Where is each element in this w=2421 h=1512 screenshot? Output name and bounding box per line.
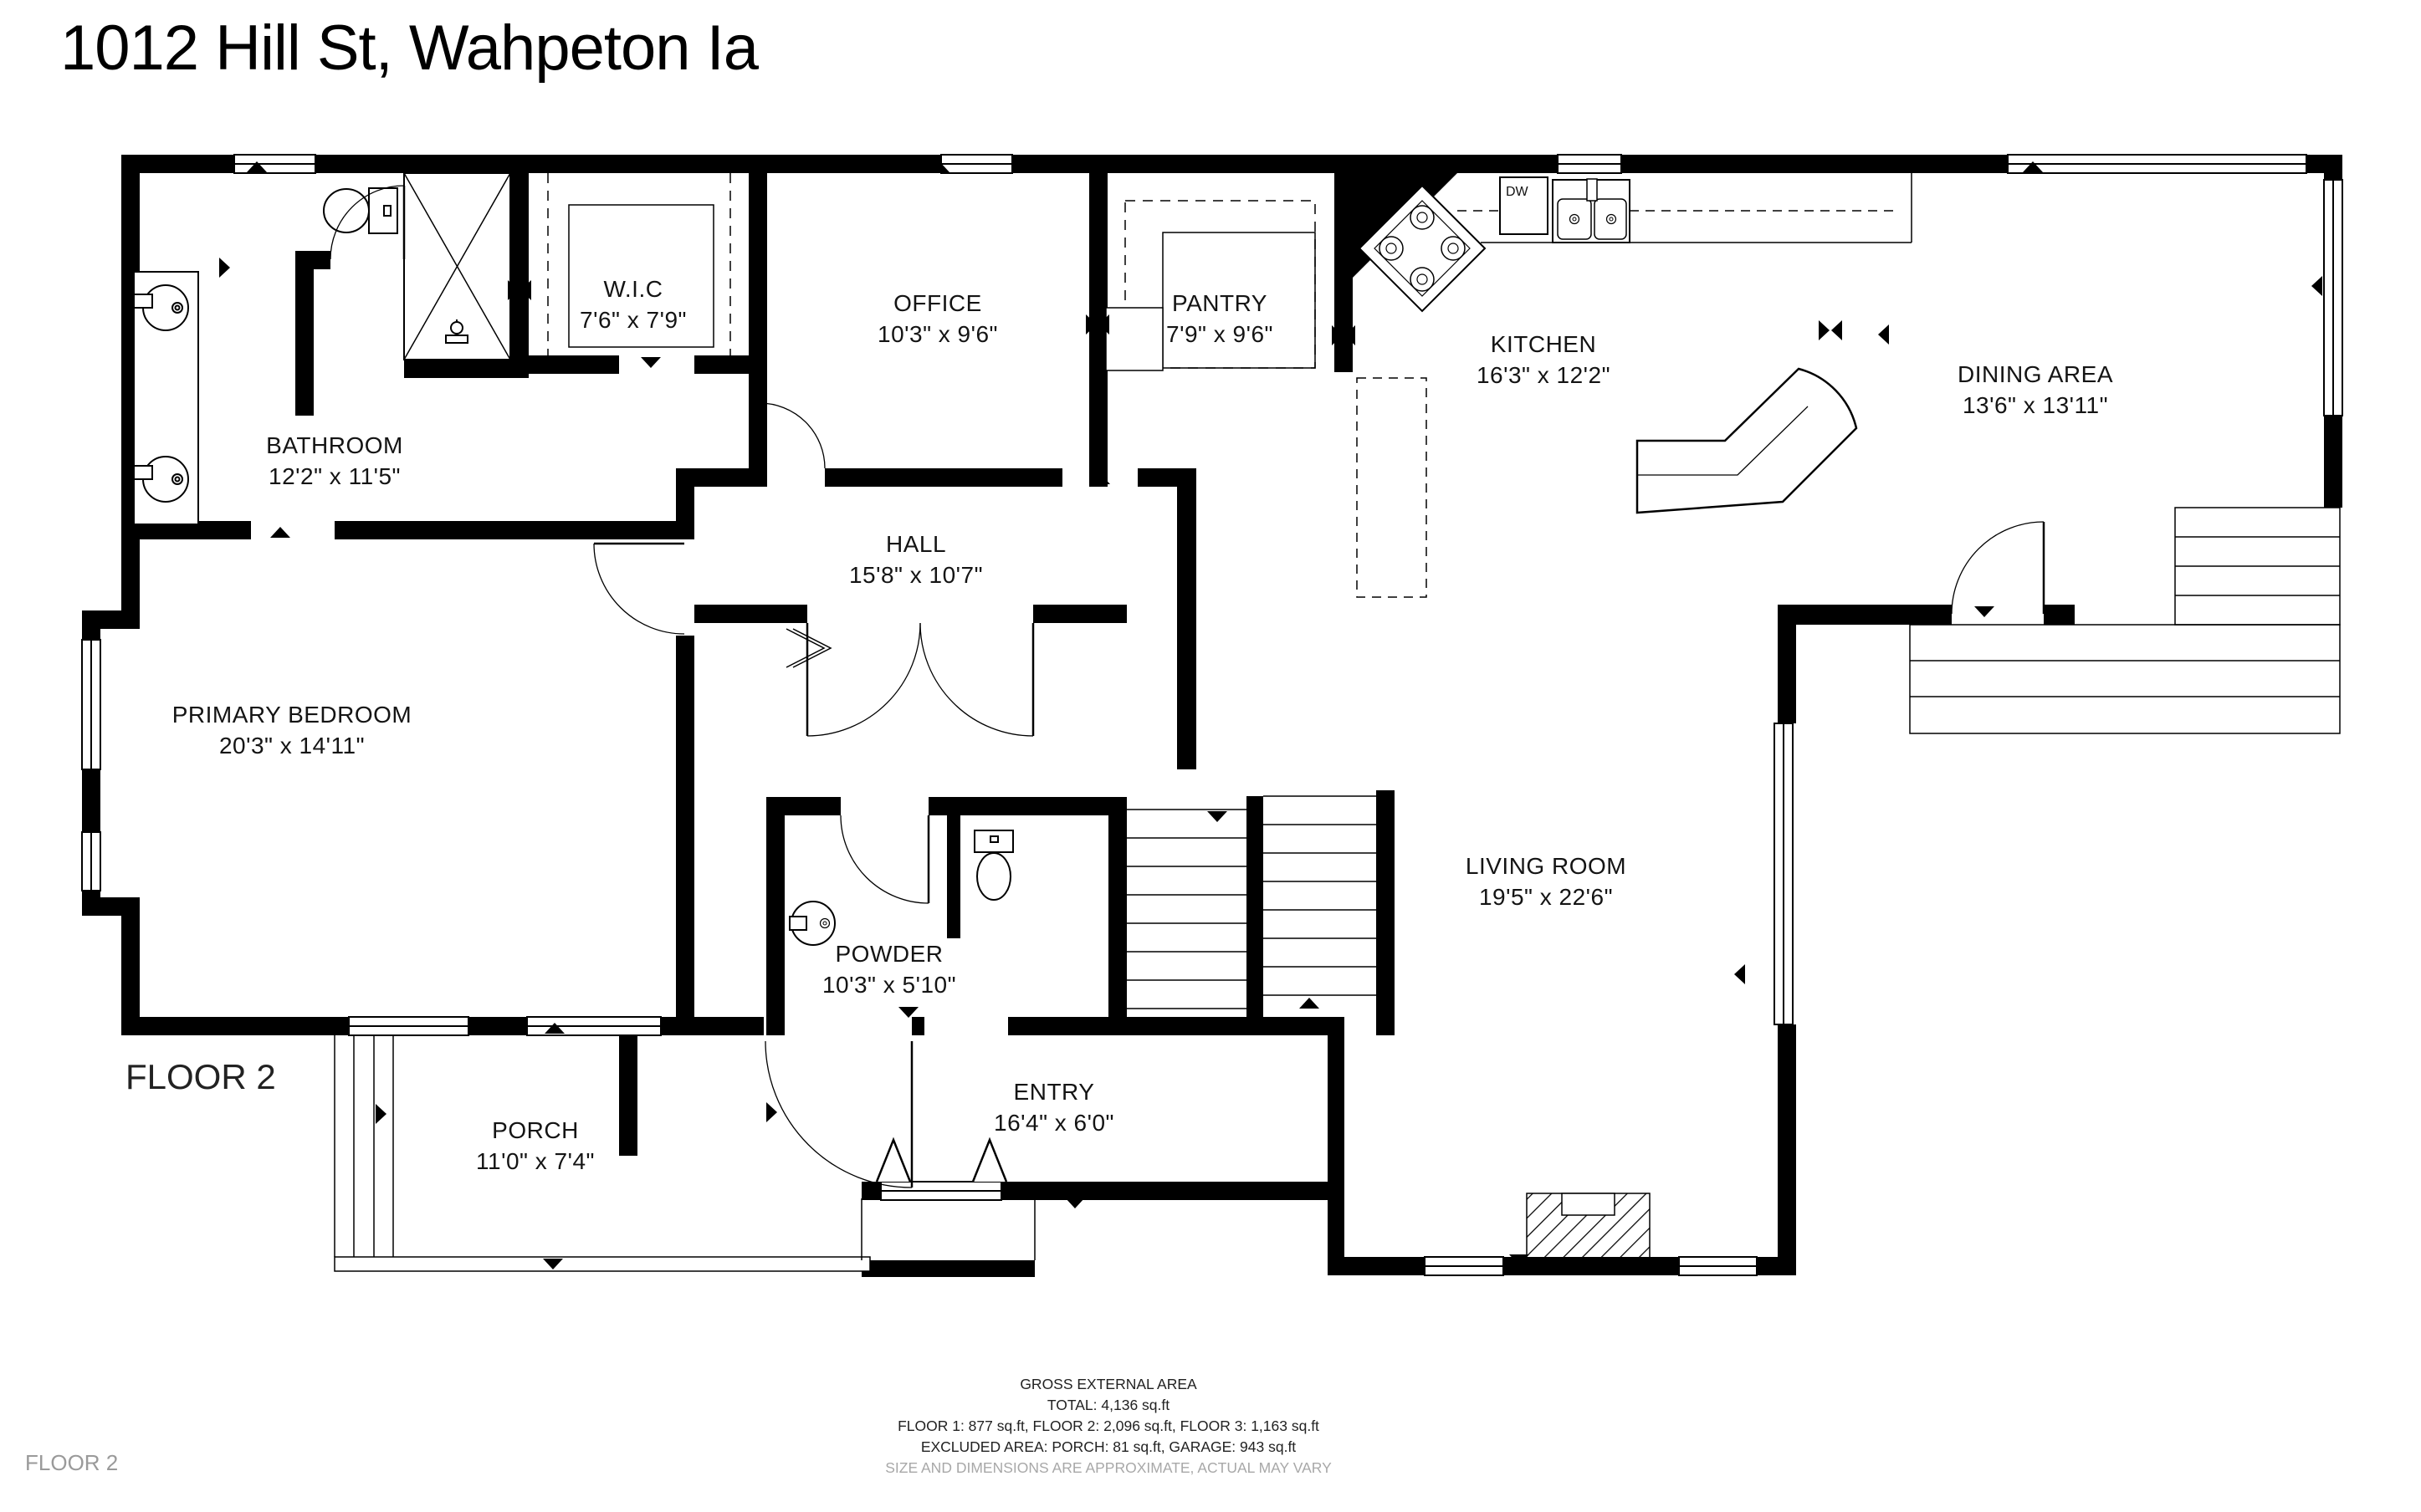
shower-icon — [404, 173, 510, 360]
room-label-hall: HALL 15'8" x 10'7" — [849, 529, 983, 590]
room-dims: 16'4" x 6'0" — [994, 1110, 1114, 1136]
room-label-pantry: PANTRY 7'9" x 9'6" — [1166, 288, 1273, 350]
room-dims: 16'3" x 12'2" — [1477, 362, 1610, 388]
room-label-powder: POWDER 10'3" x 5'10" — [822, 938, 956, 1000]
room-name: PORCH — [492, 1117, 579, 1143]
room-dims: 20'3" x 14'11" — [219, 733, 365, 759]
door-swing — [594, 544, 684, 634]
area-disclaimer: SIZE AND DIMENSIONS ARE APPROXIMATE, ACT… — [885, 1458, 1332, 1479]
room-label-office: OFFICE 10'3" x 9'6" — [878, 288, 998, 350]
room-name: W.I.C — [604, 276, 663, 302]
room-label-wic: W.I.C 7'6" x 7'9" — [580, 273, 687, 335]
window — [2008, 155, 2306, 173]
room-name: DINING AREA — [1958, 361, 2113, 387]
kitchen-island-icon — [1637, 369, 1856, 513]
room-dims: 11'0" x 7'4" — [476, 1148, 595, 1174]
door-swing — [807, 623, 920, 736]
area-total: TOTAL: 4,136 sq.ft — [885, 1395, 1332, 1416]
room-name: HALL — [886, 531, 946, 557]
kitchen-sink-icon — [1553, 179, 1630, 243]
dishwasher-label: DW — [1506, 185, 1529, 199]
door-swing — [1952, 522, 2044, 614]
room-label-kitchen: KITCHEN 16'3" x 12'2" — [1477, 329, 1610, 391]
window — [941, 155, 1012, 173]
door-swing — [760, 403, 825, 468]
window — [2324, 180, 2342, 416]
room-dims: 12'2" x 11'5" — [269, 463, 401, 489]
room-dims: 10'3" x 5'10" — [822, 972, 956, 998]
room-name: BATHROOM — [266, 432, 403, 458]
window — [82, 640, 100, 769]
door-swing — [920, 623, 1033, 736]
fireplace-icon — [1527, 1193, 1650, 1259]
room-dims: 19'5" x 22'6" — [1479, 884, 1613, 910]
area-summary: GROSS EXTERNAL AREA TOTAL: 4,136 sq.ft F… — [885, 1374, 1332, 1479]
floor-label-small: FLOOR 2 — [25, 1450, 118, 1476]
door-swing — [841, 815, 929, 903]
room-label-porch: PORCH 11'0" x 7'4" — [476, 1115, 595, 1177]
room-label-primary-bedroom: PRIMARY BEDROOM 20'3" x 14'11" — [172, 699, 412, 761]
window — [1774, 723, 1793, 1024]
window — [1679, 1257, 1757, 1275]
bifold-door — [786, 629, 831, 667]
window — [82, 832, 100, 891]
room-name: POWDER — [836, 941, 944, 967]
room-dims: 10'3" x 9'6" — [878, 321, 998, 347]
dishwasher-icon: DW — [1500, 177, 1548, 234]
window — [1558, 155, 1621, 173]
area-floors: FLOOR 1: 877 sq.ft, FLOOR 2: 2,096 sq.ft… — [885, 1416, 1332, 1437]
powder-toilet-icon — [975, 830, 1013, 900]
room-name: LIVING ROOM — [1466, 853, 1626, 879]
steps-icon — [335, 1035, 870, 1271]
room-label-living: LIVING ROOM 19'5" x 22'6" — [1466, 850, 1626, 912]
room-label-dining: DINING AREA 13'6" x 13'11" — [1958, 359, 2113, 421]
window — [881, 1182, 1001, 1200]
porch-column-icon — [877, 1140, 1006, 1182]
toilet-icon — [324, 188, 397, 233]
area-excluded: EXCLUDED AREA: PORCH: 81 sq.ft, GARAGE: … — [885, 1437, 1332, 1458]
deck-railing — [1910, 508, 2340, 733]
floor-label: FLOOR 2 — [125, 1057, 276, 1097]
room-dims: 13'6" x 13'11" — [1963, 392, 2108, 418]
bathroom-vanity-icon — [134, 272, 198, 524]
window — [349, 1017, 468, 1035]
room-name: PANTRY — [1172, 290, 1267, 316]
floorplan-page: DW — [0, 0, 2421, 1512]
room-name: KITCHEN — [1491, 331, 1596, 357]
room-dims: 7'6" x 7'9" — [580, 307, 687, 333]
plan-title: 1012 Hill St, Wahpeton Ia — [60, 12, 758, 84]
room-label-bathroom: BATHROOM 12'2" x 11'5" — [266, 430, 403, 492]
room-dims: 7'9" x 9'6" — [1166, 321, 1273, 347]
room-label-entry: ENTRY 16'4" x 6'0" — [994, 1076, 1114, 1138]
area-heading: GROSS EXTERNAL AREA — [885, 1374, 1332, 1395]
room-name: OFFICE — [893, 290, 982, 316]
window — [234, 155, 315, 173]
room-name: ENTRY — [1014, 1079, 1095, 1105]
room-dims: 15'8" x 10'7" — [849, 562, 983, 588]
window — [1425, 1257, 1503, 1275]
room-name: PRIMARY BEDROOM — [172, 702, 412, 728]
